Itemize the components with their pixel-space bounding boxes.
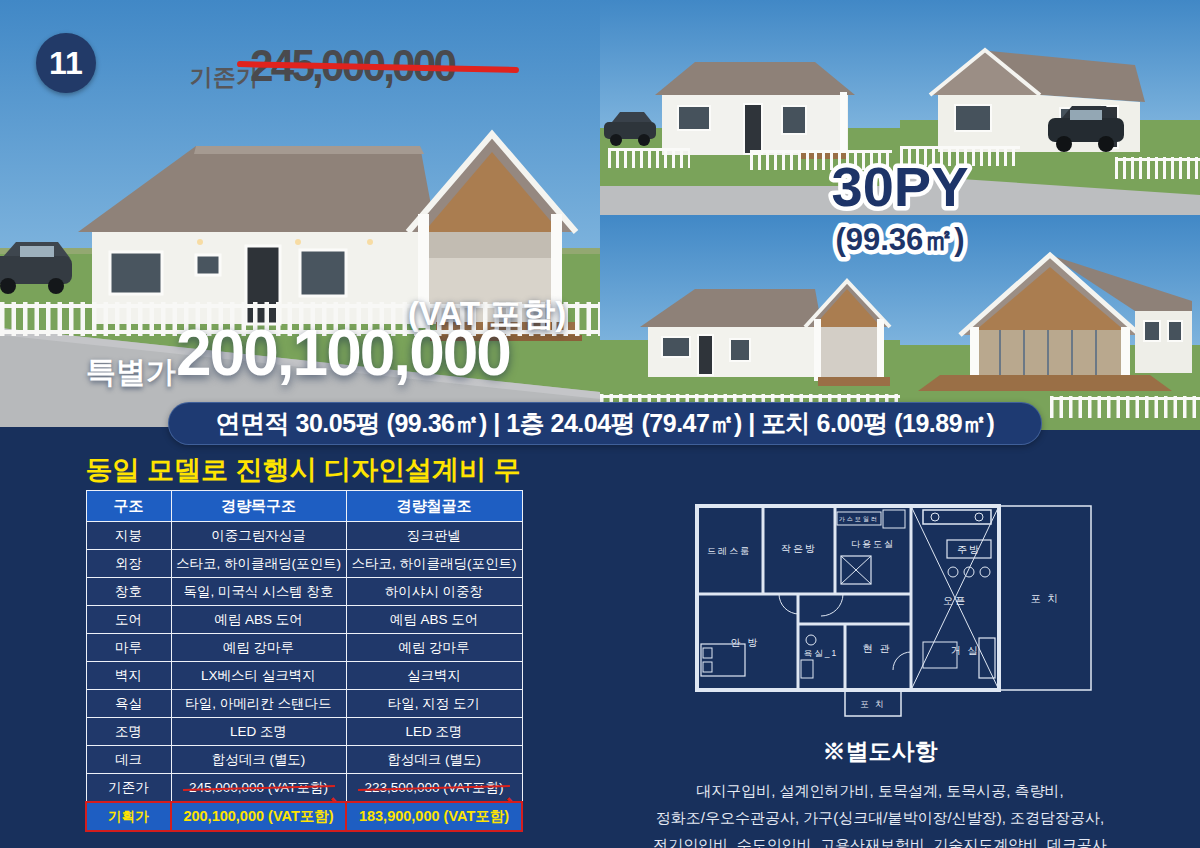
table-row: 도어 예림 ABS 도어 예림 ABS 도어 [86, 606, 522, 634]
spec-table: 구조 경량목구조 경량철골조 지붕 이중그림자싱글 징크판넬 외장 스타코, 하… [85, 490, 523, 832]
extras-line: 정화조/우오수관공사, 가구(싱크대/붙박이장/신발장), 조경담장공사, [640, 804, 1120, 831]
col-structure: 구조 [86, 491, 171, 522]
room-entrance: 현 관 [863, 643, 892, 654]
table-row: 창호 독일, 미국식 시스템 창호 하이샤시 이중창 [86, 578, 522, 606]
model-size-block: 30PY 30PY (99.36㎡) (99.36㎡) [775, 150, 1065, 262]
special-price-value: 200,100,000 [176, 316, 510, 390]
plan-price-wood: 200,100,000 (VAT포함) [171, 802, 346, 831]
table-row: 지붕 이중그림자싱글 징크판넬 [86, 522, 522, 550]
room-porch-right: 포 치 [1031, 593, 1060, 604]
row-label: 기존가 [86, 774, 171, 803]
row-wood: 예림 ABS 도어 [171, 606, 346, 634]
area-summary-band: 연면적 30.05평 (99.36㎡) | 1층 24.04평 (79.47㎡)… [168, 402, 1042, 445]
row-steel: 하이샤시 이중창 [346, 578, 522, 606]
room-master: 안 방 [731, 637, 760, 648]
special-price-label: 특별가 [86, 352, 176, 393]
row-label: 벽지 [86, 662, 171, 690]
row-steel: 예림 강마루 [346, 634, 522, 662]
model-area-text: (99.36㎡) [835, 222, 964, 257]
model-number-badge: 11 [36, 33, 96, 93]
price-drop-arrow: ➘ [329, 793, 346, 802]
floor-plan: 드레스룸 작은방 가스보일러 다용도실 주방 오픈 포 치 안 방 욕실_1 현… [683, 492, 1108, 728]
row-wood: 타일, 아메리칸 스탠다드 [171, 690, 346, 718]
room-small: 작은방 [781, 543, 817, 554]
row-steel: 예림 ABS 도어 [346, 606, 522, 634]
row-label: 마루 [86, 634, 171, 662]
row-label: 조명 [86, 718, 171, 746]
row-steel: 실크벽지 [346, 662, 522, 690]
row-wood: LX베스티 실크벽지 [171, 662, 346, 690]
row-steel: LED 조명 [346, 718, 522, 746]
room-bath: 욕실_1 [804, 648, 838, 658]
row-wood: LED 조명 [171, 718, 346, 746]
plan-price-steel: 183,900,000 (VAT포함) [346, 802, 522, 831]
table-row: 마루 예림 강마루 예림 강마루 [86, 634, 522, 662]
old-price-steel-text: 223,500,000 (VAT포함) [362, 779, 505, 797]
price-drop-arrow: ➘ [505, 793, 522, 802]
row-label: 지붕 [86, 522, 171, 550]
room-utility: 다용도실 [851, 539, 895, 549]
row-wood: 스타코, 하이클래딩(포인트) [171, 550, 346, 578]
extras-block: ※별도사항 대지구입비, 설계인허가비, 토목설계, 토목시공, 측량비, 정화… [640, 736, 1120, 848]
room-dress: 드레스룸 [707, 546, 751, 556]
extras-line: 대지구입비, 설계인허가비, 토목설계, 토목시공, 측량비, [640, 777, 1120, 804]
room-boiler: 가스보일러 [839, 516, 879, 522]
row-label: 데크 [86, 746, 171, 774]
row-steel: 징크판넬 [346, 522, 522, 550]
row-wood: 예림 강마루 [171, 634, 346, 662]
plan-price-row: 기획가 200,100,000 (VAT포함) 183,900,000 (VAT… [86, 802, 522, 831]
row-steel: 스타코, 하이클래딩(포인트) [346, 550, 522, 578]
row-steel: 타일, 지정 도기 [346, 690, 522, 718]
extras-line: 전기인입비, 수도인입비, 고용산재보험비, 기술지도계약비, 데크공사 [640, 831, 1120, 848]
row-label: 욕실 [86, 690, 171, 718]
room-open: 오픈 [943, 595, 967, 606]
spec-table-wrap: 구조 경량목구조 경량철골조 지붕 이중그림자싱글 징크판넬 외장 스타코, 하… [85, 490, 523, 832]
row-steel: 합성데크 (별도) [346, 746, 522, 774]
table-row: 벽지 LX베스티 실크벽지 실크벽지 [86, 662, 522, 690]
old-price-row: 기존가 245,000,000 (VAT포함) ➘ 223,500,000 (V… [86, 774, 522, 803]
table-row: 데크 합성데크 (별도) 합성데크 (별도) [86, 746, 522, 774]
row-label: 창호 [86, 578, 171, 606]
row-label: 외장 [86, 550, 171, 578]
row-label: 도어 [86, 606, 171, 634]
model-size-text: 30PY [832, 155, 969, 218]
col-steel: 경량철골조 [346, 491, 522, 522]
area-summary-text: 연면적 30.05평 (99.36㎡) | 1층 24.04평 (79.47㎡)… [216, 407, 995, 440]
old-price-wood-text: 245,000,000 (VAT포함) [187, 779, 330, 797]
room-living: 거 실 [951, 645, 980, 656]
col-wood: 경량목구조 [171, 491, 346, 522]
row-wood: 이중그림자싱글 [171, 522, 346, 550]
poster: 11 기존가 245,000,000 (VAT 포함) 특별가 200,100,… [0, 0, 1200, 848]
table-row: 외장 스타코, 하이클래딩(포인트) 스타코, 하이클래딩(포인트) [86, 550, 522, 578]
table-row: 욕실 타일, 아메리칸 스탠다드 타일, 지정 도기 [86, 690, 522, 718]
row-wood: 독일, 미국식 시스템 창호 [171, 578, 346, 606]
model-number: 11 [49, 45, 83, 82]
row-label: 기획가 [86, 802, 171, 831]
extras-title: ※별도사항 [640, 736, 1120, 767]
old-price-steel: 223,500,000 (VAT포함) ➘ [346, 774, 522, 803]
spec-header-row: 구조 경량목구조 경량철골조 [86, 491, 522, 522]
old-price-wood: 245,000,000 (VAT포함) ➘ [171, 774, 346, 803]
room-porch-bottom: 포 치 [860, 699, 885, 709]
room-kitchen: 주방 [957, 544, 981, 555]
row-wood: 합성데크 (별도) [171, 746, 346, 774]
table-row: 조명 LED 조명 LED 조명 [86, 718, 522, 746]
